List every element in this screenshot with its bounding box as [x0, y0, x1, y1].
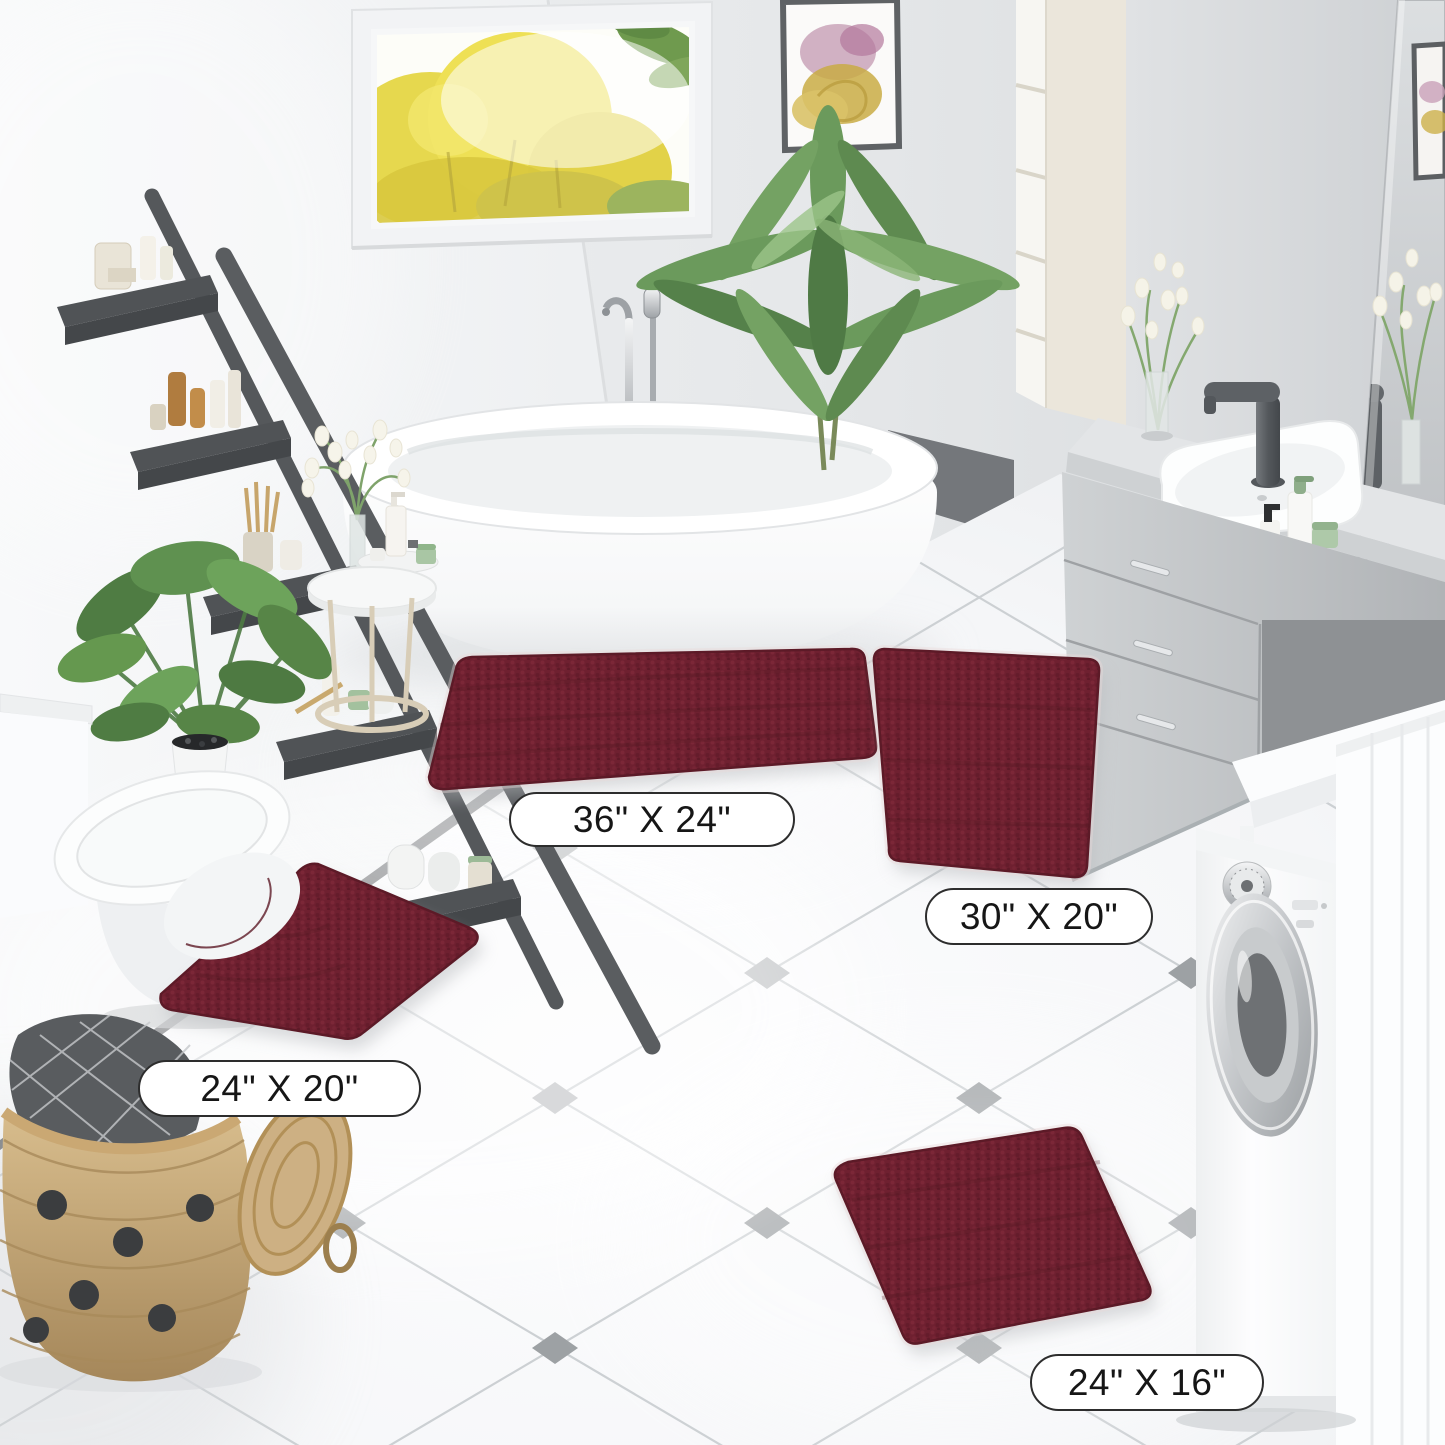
bathroom-scene: 36" X 24" 30" X 20" 24" X 20" 24" X 16" — [0, 0, 1445, 1445]
tall-cabinet — [1016, 0, 1126, 428]
size-label-24x16: 24" X 16" — [1030, 1354, 1264, 1411]
window-autumn-view — [342, 2, 722, 248]
table-top — [308, 567, 436, 609]
size-label-24x20: 24" X 20" — [138, 1060, 421, 1117]
bath-mat-medium — [874, 649, 1104, 888]
size-label-30x20: 30" X 20" — [925, 888, 1153, 945]
size-label-36x24: 36" X 24" — [509, 792, 795, 847]
scene-illustration — [0, 0, 1445, 1445]
